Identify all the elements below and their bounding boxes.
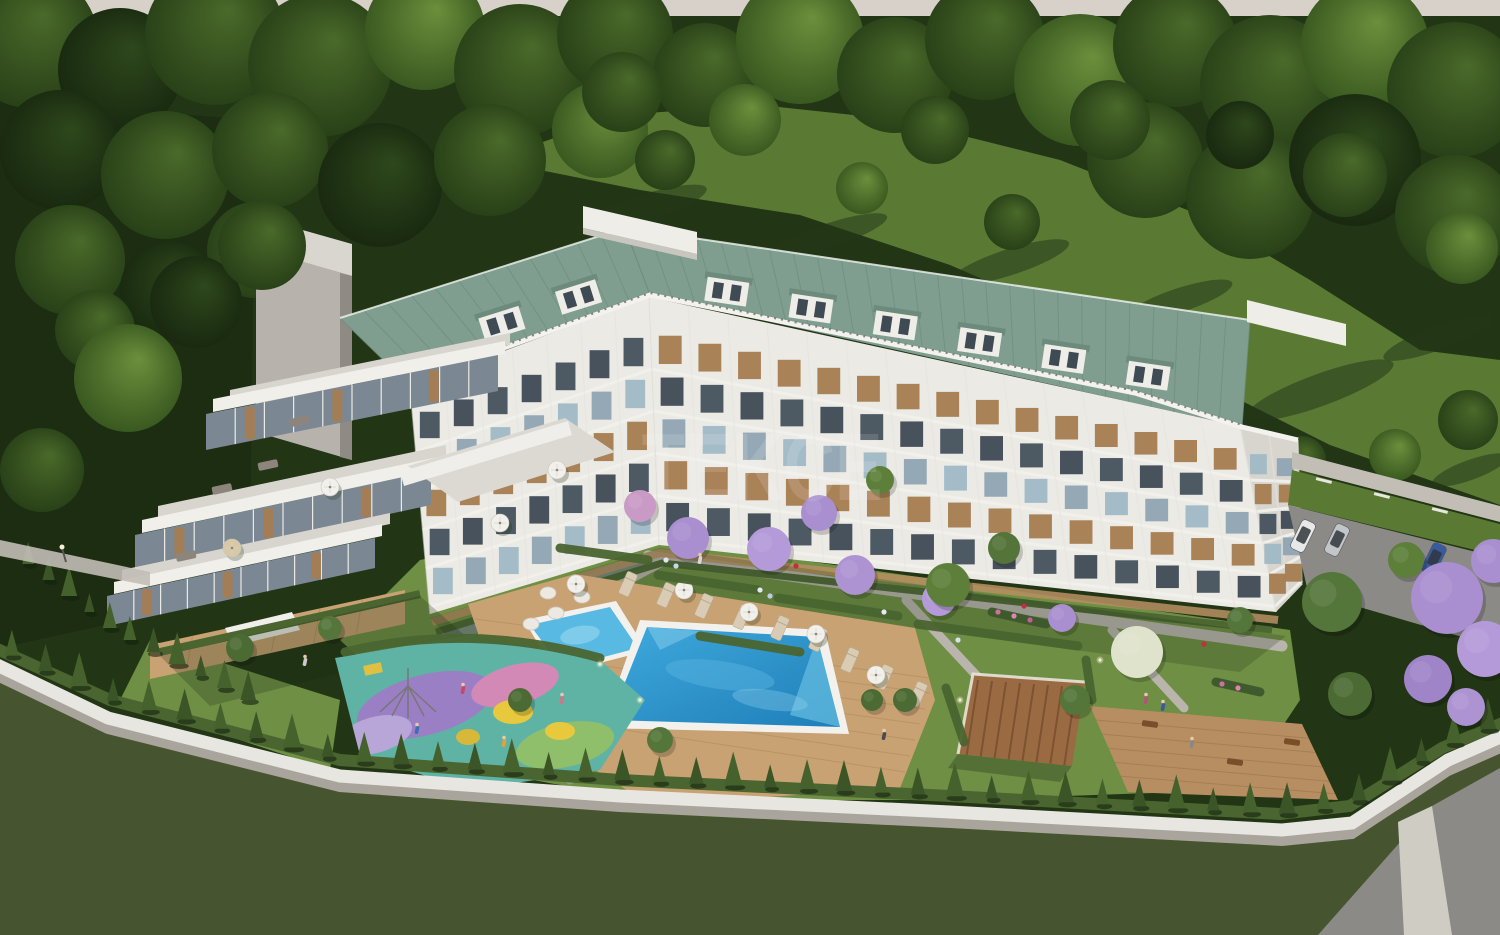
street-lamp-light — [60, 545, 65, 550]
play-dome-small — [545, 722, 575, 740]
scene-canvas: TEKCE — [0, 0, 1500, 935]
aerial-render: TEKCE — [0, 0, 1500, 935]
watermark: TEKCE — [642, 414, 883, 521]
play-tube — [456, 729, 480, 745]
